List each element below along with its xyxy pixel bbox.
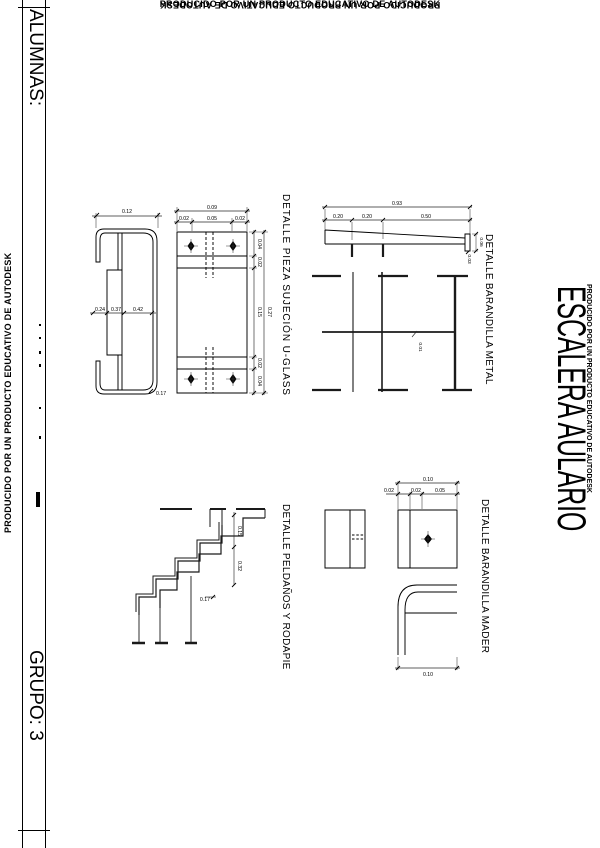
detail-metal-title: DETALLE BARANDILLA METAL xyxy=(479,234,493,385)
dim-label: 0.02 xyxy=(179,216,189,222)
dim-label: 0.93 xyxy=(392,201,402,207)
dim-label: 0.17 xyxy=(200,597,210,603)
dim-label: 0.02 xyxy=(384,488,394,494)
alumnas-label: ALUMNAS: xyxy=(24,9,45,106)
dim-label: 0.10 xyxy=(423,672,433,678)
dim-label: 0.37 xyxy=(111,307,121,313)
dim-label: 0.05 xyxy=(207,216,217,222)
titleblock-mark xyxy=(39,364,41,367)
titleblock-tick-top xyxy=(18,7,50,8)
dim-label: 0.02 xyxy=(235,216,245,222)
dim-label: 0.05 xyxy=(435,488,445,494)
titleblock-mark xyxy=(39,351,41,354)
dim-label: 0.02 xyxy=(256,257,262,267)
dim-label: 0.15 xyxy=(256,307,262,317)
dim-label: 0.02 xyxy=(256,358,262,368)
detail-stairs-title: DETALLE PELDAÑOS Y RODAPIE xyxy=(276,504,290,670)
uglass-channel-profile xyxy=(96,229,157,394)
detail-madera-drawing: 0.10 0.02 0.02 0.05 0.10 xyxy=(318,475,473,687)
dim-label: 0.32 xyxy=(236,561,242,571)
dim-label: 0.04 xyxy=(256,239,262,249)
dim-label: 0.10 xyxy=(423,477,433,483)
dim-label: 0.12 xyxy=(122,209,132,215)
dim-label: 0.24 xyxy=(95,307,105,313)
detail-uglass-drawing: 0.12 0.24 0.37 0.42 0.17 0.09 0.02 0.05 … xyxy=(85,190,295,405)
titleblock-mark xyxy=(39,407,41,409)
producido-banner-left: PRODUCIDO POR UN PRODUCTO EDUCATIVO DE A… xyxy=(4,283,16,533)
bolt-icon xyxy=(188,241,237,384)
grupo-label: GRUPO: 3 xyxy=(24,650,45,741)
madera-side-block xyxy=(325,510,365,568)
titleblock-line-outer xyxy=(22,0,23,848)
dim-label: 0.04 xyxy=(256,376,262,386)
producido-banner-bottom: PRODUCIDO POR UN PRODUCTO EDUCATIVO DE A… xyxy=(0,0,600,9)
dim-label: 0.03 xyxy=(466,254,472,264)
dim-label: 0.02 xyxy=(411,488,421,494)
titleblock-mark xyxy=(39,324,41,326)
titleblock-tick-bottom xyxy=(18,830,50,831)
detail-uglass-title: DETALLE PIEZA SUJECIÓN U-GLASS xyxy=(276,194,290,396)
detail-madera-title: DETALLE BARANDILLA MADER xyxy=(475,499,489,653)
dim-label: 0.27 xyxy=(266,307,272,317)
cad-sheet: PRODUCIDO POR UN PRODUCTO EDUCATIVO DE A… xyxy=(0,0,600,848)
dim-label: 0.01 xyxy=(417,342,423,352)
sheet-title: ESCALERA AULARIO xyxy=(549,286,591,531)
dim-label: 0.09 xyxy=(207,205,217,211)
detail-stairs-drawing: 0.15 0.32 0.17 xyxy=(115,480,300,690)
titleblock-mark xyxy=(39,436,41,439)
uglass-plate xyxy=(177,232,247,393)
metal-rail-elevation: 0.01 xyxy=(312,272,472,392)
metal-rail-wedge xyxy=(325,230,465,244)
dim-label: 0.17 xyxy=(156,391,166,397)
titleblock-mark xyxy=(36,492,40,507)
dim-label: 0.15 xyxy=(236,526,242,536)
detail-metal-drawing: 0.93 0.20 0.20 0.50 0.06 0.03 0.01 xyxy=(300,195,500,400)
stairs-finish-zigzag xyxy=(160,518,265,608)
dim-label: 0.50 xyxy=(421,214,431,220)
dim-label: 0.20 xyxy=(362,214,372,220)
dim-label: 0.20 xyxy=(333,214,343,220)
madera-handrail-profile xyxy=(398,585,457,655)
titleblock-mark xyxy=(39,337,41,339)
dim-label: 0.42 xyxy=(133,307,143,313)
